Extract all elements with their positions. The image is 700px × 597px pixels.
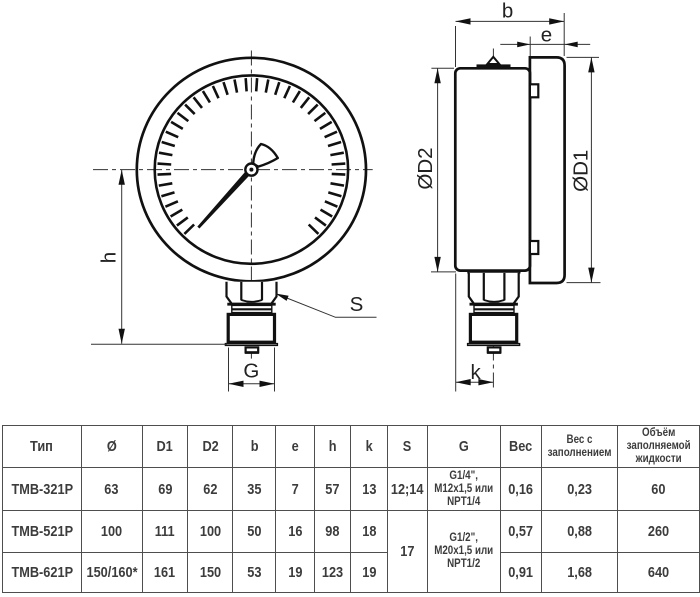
svg-text:k: k	[470, 361, 481, 384]
svg-text:h: h	[97, 252, 120, 263]
svg-text:G: G	[243, 360, 259, 383]
svg-text:b: b	[502, 0, 513, 23]
svg-text:S: S	[350, 293, 364, 316]
svg-text:ØD2: ØD2	[414, 147, 437, 189]
svg-text:e: e	[541, 24, 552, 47]
svg-text:ØD1: ØD1	[569, 150, 592, 192]
